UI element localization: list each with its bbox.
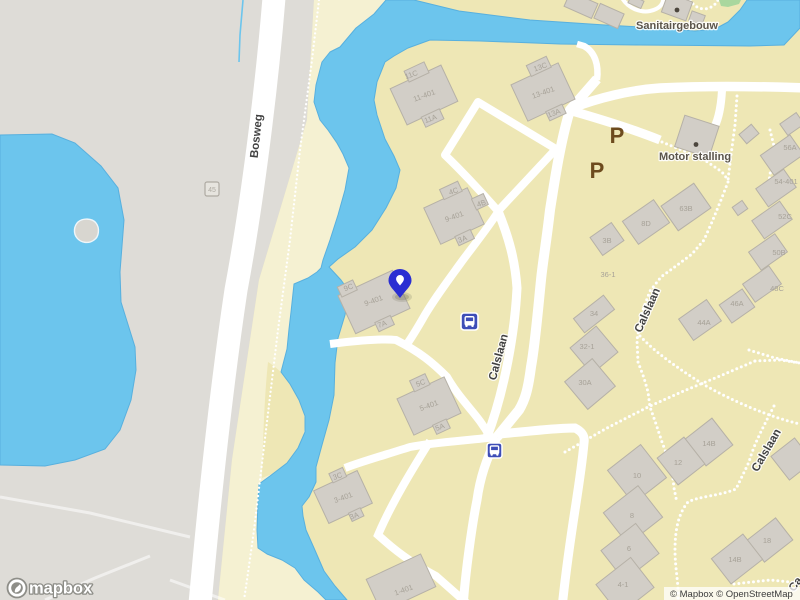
svg-text:30A: 30A [578, 378, 591, 387]
svg-text:34: 34 [590, 309, 598, 318]
svg-text:56A: 56A [783, 143, 796, 152]
svg-text:10: 10 [633, 471, 641, 480]
svg-text:8: 8 [630, 511, 634, 520]
svg-text:12: 12 [674, 458, 682, 467]
svg-text:mapbox: mapbox [29, 580, 93, 598]
svg-text:46A: 46A [730, 299, 743, 308]
svg-text:54-401: 54-401 [774, 177, 797, 186]
svg-text:Motor stalling: Motor stalling [659, 151, 731, 163]
svg-text:14B: 14B [702, 439, 715, 448]
svg-text:8D: 8D [641, 219, 651, 228]
svg-text:P: P [590, 158, 605, 183]
svg-text:50B: 50B [772, 248, 785, 257]
svg-text:44A: 44A [697, 318, 710, 327]
svg-text:45: 45 [208, 187, 216, 194]
svg-text:P: P [610, 123, 625, 148]
svg-text:48C: 48C [770, 284, 784, 293]
svg-text:6: 6 [627, 544, 631, 553]
svg-text:14B: 14B [728, 555, 741, 564]
svg-text:63B: 63B [679, 204, 692, 213]
svg-text:36-1: 36-1 [600, 270, 615, 279]
svg-text:4-1: 4-1 [618, 580, 629, 589]
svg-text:3B: 3B [602, 236, 611, 245]
svg-text:© Mapbox © OpenStreetMap: © Mapbox © OpenStreetMap [670, 589, 793, 600]
svg-text:52C: 52C [778, 212, 792, 221]
svg-text:Sanitairgebouw: Sanitairgebouw [636, 20, 718, 32]
svg-text:18: 18 [763, 536, 771, 545]
svg-text:32-1: 32-1 [579, 342, 594, 351]
